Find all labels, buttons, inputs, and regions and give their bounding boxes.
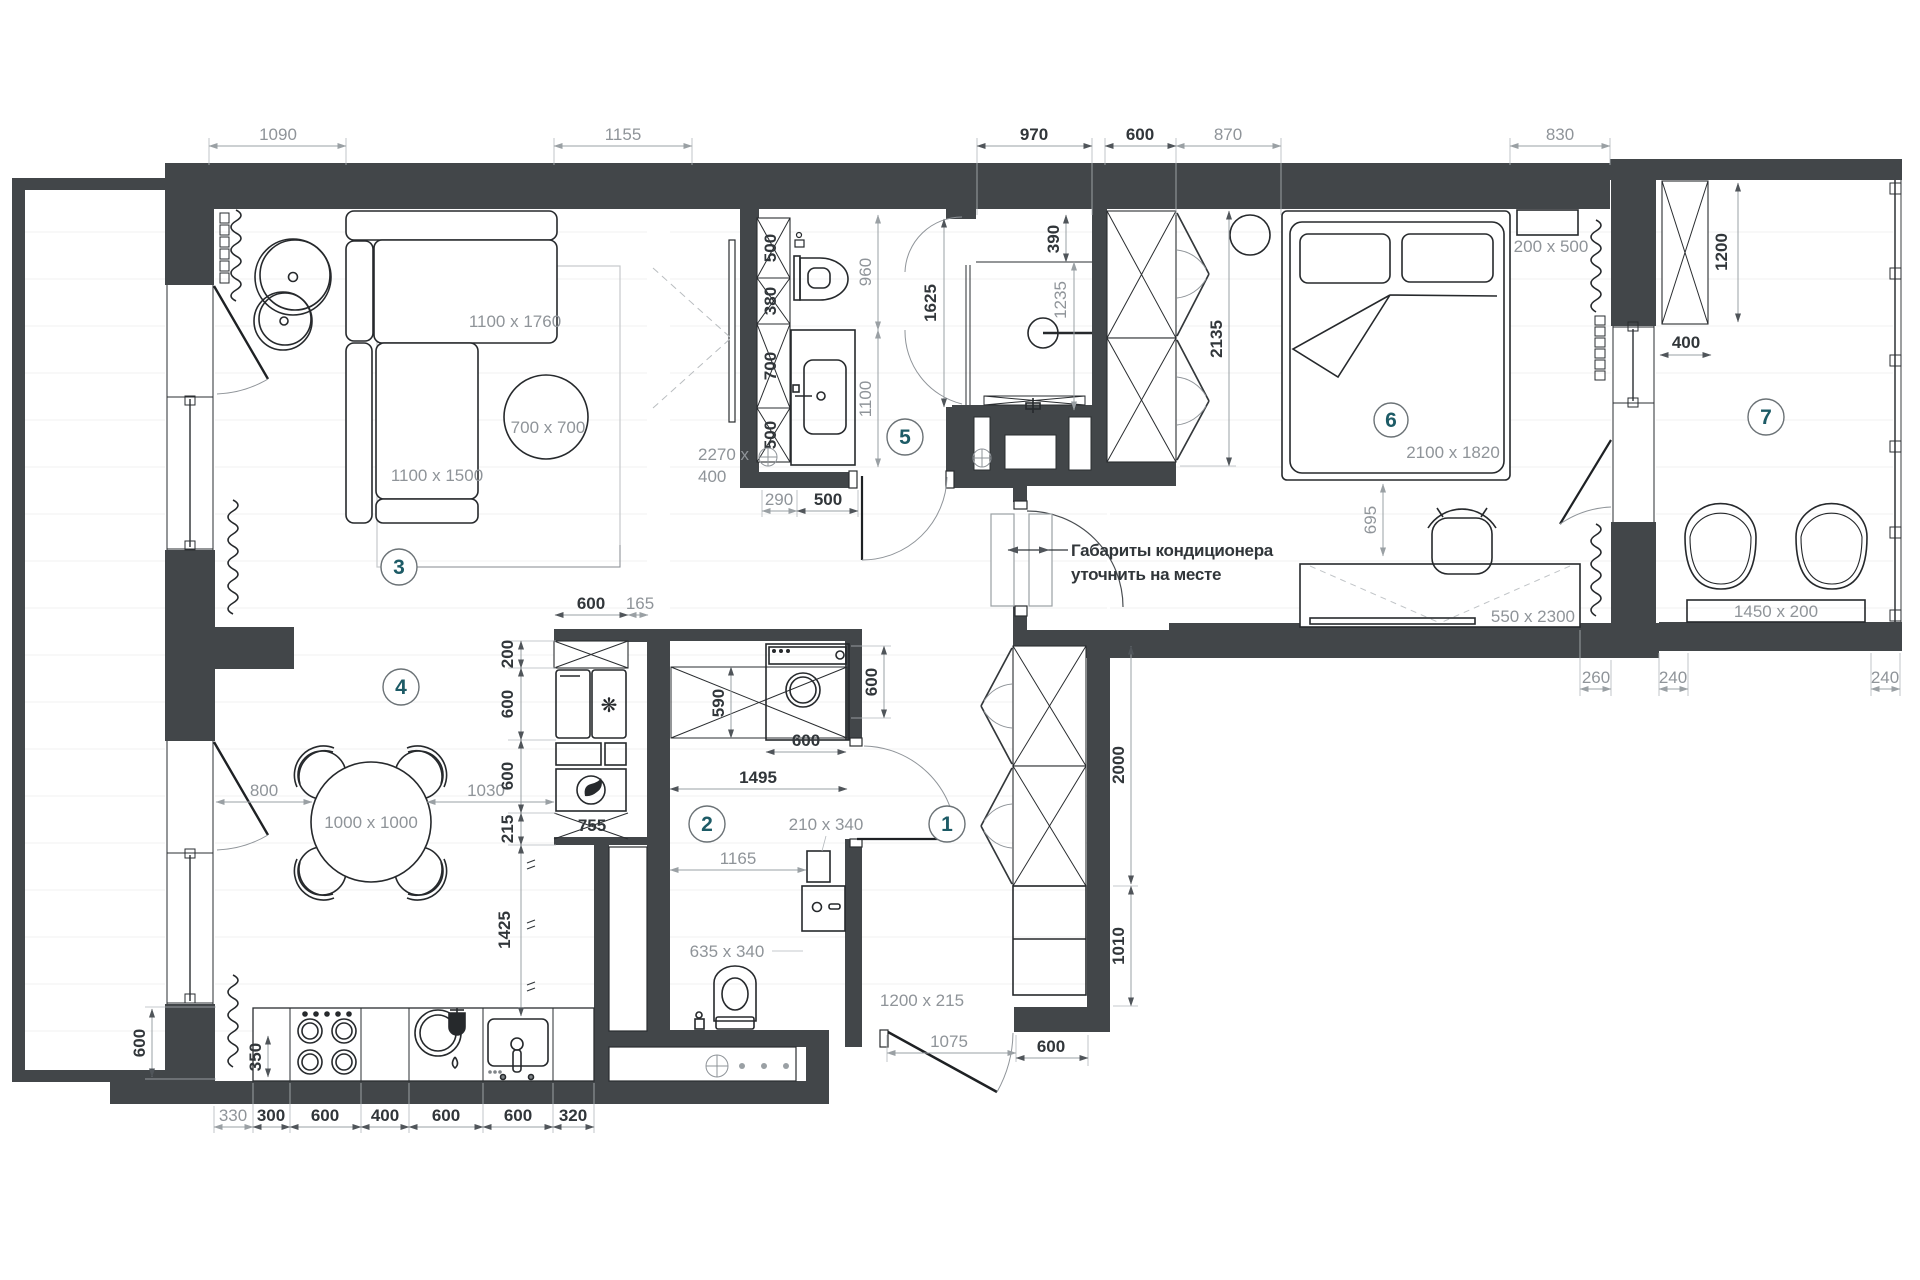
svg-text:1100 x 1760: 1100 x 1760	[469, 312, 561, 331]
svg-text:1155: 1155	[605, 125, 642, 144]
svg-text:600: 600	[792, 731, 820, 750]
svg-text:870: 870	[1214, 125, 1242, 144]
svg-text:1425: 1425	[495, 911, 514, 949]
svg-text:800: 800	[250, 781, 278, 800]
svg-text:5: 5	[899, 426, 911, 449]
svg-text:200: 200	[498, 640, 517, 668]
svg-text:2000: 2000	[1109, 746, 1128, 784]
svg-text:600: 600	[311, 1106, 339, 1125]
svg-text:2135: 2135	[1207, 320, 1226, 358]
svg-text:960: 960	[856, 258, 875, 286]
svg-text:7: 7	[1760, 406, 1772, 429]
svg-text:1010: 1010	[1109, 927, 1128, 965]
svg-text:330: 330	[219, 1106, 247, 1125]
svg-text:уточнить на месте: уточнить на месте	[1071, 565, 1221, 584]
svg-text:1495: 1495	[739, 768, 777, 787]
svg-text:400: 400	[371, 1106, 399, 1125]
svg-text:635 x 340: 635 x 340	[690, 942, 765, 961]
svg-text:320: 320	[559, 1106, 587, 1125]
svg-text:600: 600	[130, 1029, 149, 1057]
svg-text:1090: 1090	[259, 125, 297, 144]
svg-text:1450 x 200: 1450 x 200	[1734, 602, 1818, 621]
svg-text:Габариты кондиционера: Габариты кондиционера	[1071, 541, 1274, 560]
svg-text:380: 380	[761, 287, 780, 315]
svg-text:1200 x 215: 1200 x 215	[880, 991, 964, 1010]
svg-text:700 x 700: 700 x 700	[511, 418, 586, 437]
svg-text:600: 600	[498, 762, 517, 790]
svg-text:600: 600	[1037, 1037, 1065, 1056]
svg-text:3: 3	[393, 556, 405, 579]
svg-text:500: 500	[761, 421, 780, 449]
svg-text:2100 x 1820: 2100 x 1820	[1406, 443, 1500, 462]
svg-text:390: 390	[1044, 225, 1063, 253]
svg-text:400: 400	[698, 467, 726, 486]
svg-text:350: 350	[246, 1043, 265, 1071]
svg-text:1100: 1100	[856, 381, 875, 418]
svg-text:600: 600	[1126, 125, 1154, 144]
svg-text:600: 600	[862, 668, 881, 696]
svg-text:600: 600	[504, 1106, 532, 1125]
svg-text:500: 500	[814, 490, 842, 509]
svg-text:970: 970	[1020, 125, 1048, 144]
svg-text:240: 240	[1659, 668, 1687, 687]
svg-text:695: 695	[1361, 506, 1380, 534]
svg-text:1165: 1165	[720, 849, 757, 868]
svg-text:210 x 340: 210 x 340	[789, 815, 864, 834]
svg-text:550 x 2300: 550 x 2300	[1491, 607, 1575, 626]
svg-text:830: 830	[1546, 125, 1574, 144]
svg-text:300: 300	[257, 1106, 285, 1125]
svg-text:4: 4	[395, 676, 407, 699]
svg-text:1: 1	[941, 813, 953, 836]
svg-text:2: 2	[701, 813, 713, 836]
svg-text:500: 500	[761, 234, 780, 262]
svg-text:290: 290	[765, 490, 793, 509]
svg-text:590: 590	[709, 689, 728, 717]
svg-text:260: 260	[1582, 668, 1610, 687]
svg-text:6: 6	[1385, 409, 1397, 432]
svg-text:1100 x 1500: 1100 x 1500	[391, 466, 483, 485]
svg-text:215: 215	[498, 815, 517, 843]
svg-text:240: 240	[1871, 668, 1899, 687]
svg-text:755: 755	[578, 816, 606, 835]
svg-text:700: 700	[761, 352, 780, 380]
svg-text:1000 x 1000: 1000 x 1000	[324, 813, 418, 832]
svg-text:200 x 500: 200 x 500	[1514, 237, 1589, 256]
svg-text:165: 165	[626, 594, 654, 613]
svg-text:1200: 1200	[1712, 233, 1731, 271]
svg-text:600: 600	[432, 1106, 460, 1125]
svg-text:1625: 1625	[921, 284, 940, 322]
svg-text:1235: 1235	[1051, 281, 1070, 319]
svg-text:❋: ❋	[601, 695, 618, 717]
svg-text:2270 x: 2270 x	[698, 445, 750, 464]
svg-text:400: 400	[1672, 333, 1700, 352]
svg-text:600: 600	[498, 690, 517, 718]
svg-text:600: 600	[577, 594, 605, 613]
svg-text:1075: 1075	[930, 1032, 968, 1051]
